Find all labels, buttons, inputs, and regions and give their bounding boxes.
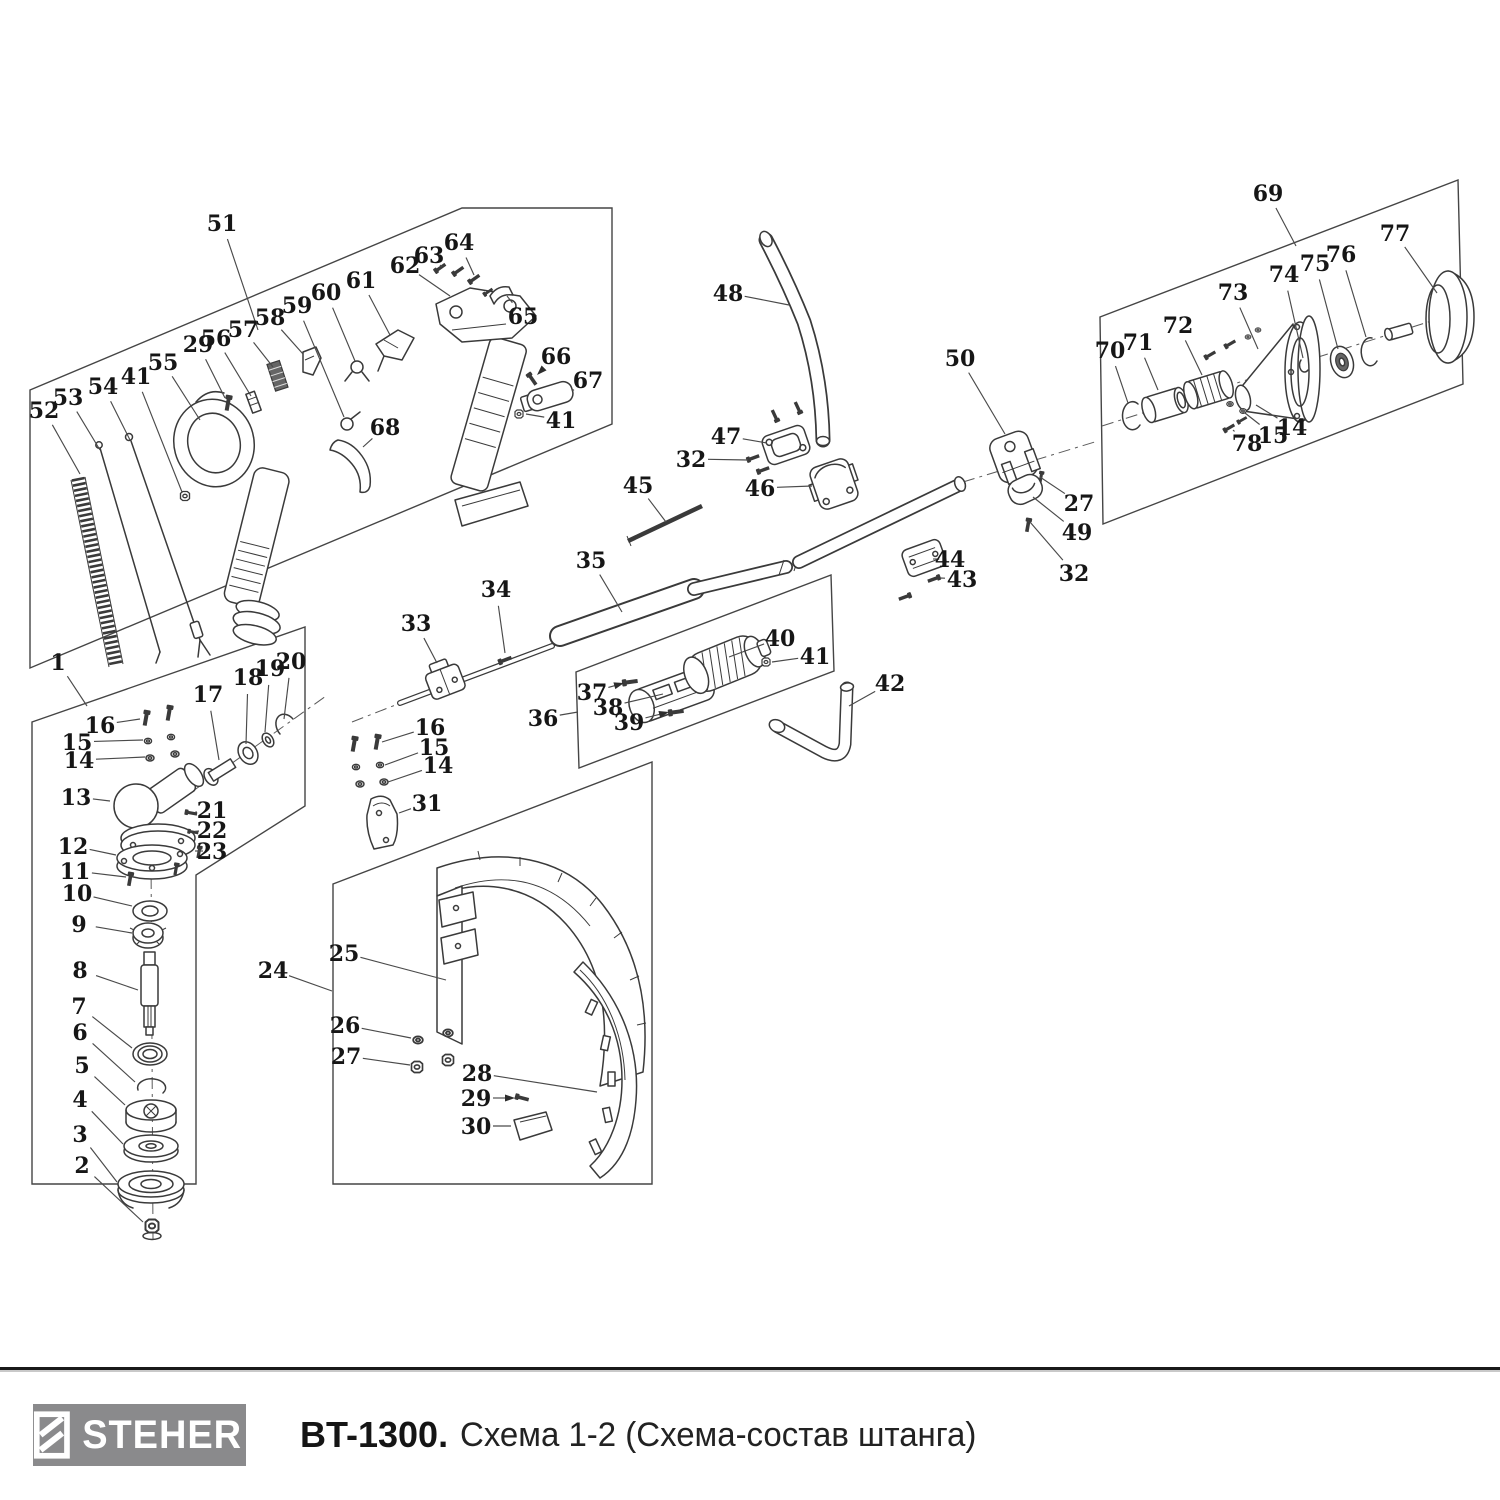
part-14-washer-1: [146, 755, 154, 761]
part-labels-layer: 5152535441552956575859606162636465666768…: [29, 181, 1437, 1222]
leader-61-12: [369, 295, 390, 335]
part-21-screw: [184, 809, 197, 817]
part-2-nut: [143, 1220, 161, 1240]
part-5-holder-cup: [126, 1100, 176, 1132]
part-label-70-77: 70: [1095, 338, 1126, 364]
part-53-cable: [96, 442, 160, 663]
part-68-throttle-trigger: [330, 440, 370, 492]
part-label-14-50: 14: [423, 753, 454, 779]
leader-20-28: [284, 678, 289, 719]
leader-41-20: [526, 414, 544, 417]
part-label-26-71: 26: [330, 1013, 361, 1039]
leader-32-61: [708, 459, 748, 460]
leader-16-22: [117, 719, 140, 722]
part-15-washer-e: [1227, 402, 1233, 407]
part-10-bearing: [133, 901, 167, 921]
part-47-handlebar-clamp-upper: [760, 424, 811, 467]
leader-arrow-37-53: [613, 682, 624, 689]
footer-divider: [0, 1367, 1500, 1372]
leader-6-39: [93, 1043, 135, 1082]
leader-69-76: [1276, 208, 1296, 246]
leader-62-13: [419, 275, 450, 296]
part-shaft-rod: [400, 646, 552, 703]
guard-assembly-parts: [412, 851, 647, 1178]
leader-5-40: [94, 1077, 125, 1105]
part-57-ribbed-block: [267, 361, 288, 392]
leader-45-47: [648, 499, 666, 522]
leader-33-44: [424, 638, 437, 663]
leader-24-69: [289, 976, 332, 991]
part-73-washer-2: [1255, 328, 1261, 332]
part-label-4-41: 4: [72, 1087, 87, 1113]
part-label-68-19: 68: [370, 415, 401, 441]
part-52-spring: [71, 477, 123, 667]
part-label-65-16: 65: [508, 304, 539, 330]
part-16-screw-1: [141, 710, 151, 727]
leader-16-48: [382, 732, 414, 742]
part-15-washer-1: [144, 738, 151, 743]
part-7-bearing-lower: [133, 1043, 167, 1065]
part-label-59-10: 59: [282, 293, 313, 319]
centerline-shaft-left: [352, 704, 398, 722]
part-41-nut-a: [181, 492, 190, 501]
part-41-nut-c: [762, 658, 770, 666]
part-label-55-5: 55: [148, 350, 179, 376]
part-label-54-3: 54: [88, 374, 119, 400]
leader-27-66: [1040, 477, 1065, 494]
part-77-clutch-drum: [1383, 271, 1474, 363]
part-label-67-18: 67: [573, 368, 604, 394]
leader-48-59: [745, 296, 789, 305]
leader-17-25: [211, 711, 219, 760]
part-30-cutoff-blade: [514, 1112, 552, 1140]
leader-arrow-29-74: [505, 1095, 515, 1102]
leader-50-65: [969, 373, 1005, 434]
part-label-29-74: 29: [461, 1086, 492, 1112]
part-66-screw: [525, 371, 538, 386]
part-label-25-70: 25: [329, 941, 360, 967]
leader-14-24: [96, 757, 145, 759]
part-label-2-43: 2: [74, 1153, 89, 1179]
leader-15-23: [94, 740, 143, 741]
leader-32-68: [1030, 522, 1063, 560]
part-label-6-39: 6: [72, 1020, 87, 1046]
part-label-12-33: 12: [58, 834, 89, 860]
leader-58-9: [281, 330, 303, 354]
part-label-28-73: 28: [462, 1061, 493, 1087]
part-14-washer-m1: [356, 781, 364, 787]
leader-54-3: [111, 401, 130, 440]
part-label-60-11: 60: [311, 280, 342, 306]
part-label-3-42: 3: [72, 1122, 87, 1148]
leader-8-37: [96, 976, 138, 990]
part-40-foam-grip: [678, 627, 776, 697]
part-73-washer-1: [1245, 335, 1251, 339]
leader-75-82: [1319, 279, 1338, 349]
leader-41-57: [772, 658, 798, 662]
part-label-66-17: 66: [541, 344, 572, 370]
part-27-nut-1: [412, 1062, 423, 1073]
leader-49-67: [1033, 497, 1064, 521]
clutch-assembly-parts: [1123, 271, 1474, 434]
steher-logo-text: STEHER: [82, 1413, 242, 1458]
leader-4-41: [92, 1111, 123, 1144]
part-46-handlebar-clamp-lower: [804, 455, 864, 512]
handle-assembly-parts: [71, 262, 575, 667]
part-25-guard-shield: [437, 851, 646, 1086]
part-label-32-61: 32: [676, 447, 707, 473]
part-60-wire-spring: [345, 361, 369, 381]
leader-31-51: [399, 809, 411, 813]
part-13-gear-housing: [114, 760, 207, 859]
steher-logo: STEHER: [33, 1404, 246, 1466]
part-15-washer-2: [167, 734, 174, 739]
part-label-20-28: 20: [276, 649, 307, 675]
part-61-lock-lever: [376, 330, 414, 371]
leader-19-27: [265, 685, 269, 732]
leader-12-33: [90, 849, 116, 855]
leader-64-15: [466, 257, 474, 275]
leader-27-72: [363, 1058, 410, 1065]
leader-36-52: [560, 712, 578, 715]
leader-13-29: [93, 799, 110, 801]
part-label-61-12: 61: [346, 268, 377, 294]
part-48-handlebar-tube: [757, 229, 829, 445]
part-label-5-40: 5: [74, 1053, 89, 1079]
mount-hardware-parts: [349, 734, 397, 849]
part-17-pinion-shaft: [201, 755, 238, 787]
part-label-1-21: 1: [50, 650, 65, 676]
schema-caption: BT-1300. Схема 1-2 (Схема-состав штанга): [300, 1404, 992, 1466]
footer: STEHER BT-1300. Схема 1-2 (Схема-состав …: [0, 1400, 1500, 1470]
part-43-screw-2: [898, 592, 913, 602]
part-70-ring: [1123, 402, 1140, 430]
diagram-page: 5152535441552956575859606162636465666768…: [0, 0, 1500, 1500]
part-27-nut-2: [443, 1055, 454, 1066]
leader-14-50: [388, 770, 422, 782]
part-label-53-2: 53: [53, 385, 84, 411]
part-label-27-72: 27: [331, 1044, 362, 1070]
part-8-drive-shaft: [141, 952, 158, 1035]
part-label-40-56: 40: [765, 626, 796, 652]
leader-76-83: [1346, 270, 1366, 337]
leader-15-49: [385, 753, 418, 765]
part-45-long-screw-rod: [627, 506, 702, 546]
part-42-loop-tube: [767, 682, 854, 755]
schema-subtitle: Схема 1-2 (Схема-состав штанга): [460, 1416, 976, 1455]
leader-77-84: [1405, 247, 1437, 293]
part-label-76-83: 76: [1326, 242, 1357, 268]
part-76-snap-ring: [1361, 338, 1377, 366]
part-41-nut-b: [515, 410, 523, 418]
part-26-washer-1: [413, 1036, 423, 1043]
steher-logo-icon: [33, 1410, 71, 1460]
part-56-spring-clip: [246, 391, 261, 413]
part-label-46-62: 46: [745, 476, 776, 502]
part-59-wire-ring: [341, 412, 360, 430]
part-label-48-59: 48: [713, 281, 744, 307]
part-label-69-76: 69: [1253, 181, 1284, 207]
part-4-pressure-disc: [124, 1135, 178, 1162]
schema-model: BT-1300.: [300, 1414, 448, 1456]
part-label-13-29: 13: [61, 785, 92, 811]
part-47-screw-2: [793, 401, 804, 416]
part-73-screw-1: [1203, 349, 1217, 360]
leader-9-36: [96, 927, 132, 933]
part-43-screw-1: [927, 574, 942, 584]
part-label-31-51: 31: [412, 791, 443, 817]
leader-7-38: [92, 1017, 132, 1048]
part-31-bracket: [367, 796, 398, 849]
part-label-73-80: 73: [1218, 280, 1249, 306]
part-label-47-60: 47: [711, 424, 742, 450]
part-73-screw-2: [1223, 338, 1237, 349]
part-label-7-38: 7: [71, 994, 86, 1020]
leader-10-35: [94, 897, 132, 906]
part-label-23-32: 23: [197, 839, 228, 865]
part-18-bearing-b: [234, 738, 262, 768]
leader-71-78: [1145, 358, 1158, 390]
exploded-parts-diagram: 5152535441552956575859606162636465666768…: [0, 0, 1500, 1500]
part-label-32-68: 32: [1059, 561, 1090, 587]
leader-35-46: [600, 575, 622, 612]
part-label-35-46: 35: [576, 548, 607, 574]
part-label-39-55: 39: [614, 710, 645, 736]
part-75-bearing-e: [1327, 343, 1357, 380]
part-label-64-15: 64: [444, 230, 475, 256]
part-label-51-0: 51: [207, 211, 238, 237]
part-19-washer-b: [260, 731, 276, 749]
part-16-screw-2: [164, 705, 174, 722]
part-label-33-44: 33: [401, 611, 432, 637]
leader-53-2: [77, 412, 100, 450]
leader-57-8: [254, 342, 273, 367]
part-label-14-87: 14: [1277, 415, 1308, 441]
part-label-42-58: 42: [875, 671, 906, 697]
leader-46-62: [777, 486, 812, 487]
part-label-50-65: 50: [945, 346, 976, 372]
part-label-45-47: 45: [623, 473, 654, 499]
leader-72-79: [1185, 340, 1202, 375]
part-label-36-52: 36: [528, 706, 559, 732]
leader-11-34: [92, 873, 126, 877]
part-label-8-37: 8: [72, 958, 87, 984]
part-label-14-24: 14: [64, 748, 95, 774]
part-label-27-66: 27: [1064, 491, 1095, 517]
part-14-washer-m2: [380, 779, 388, 785]
box-handle-assembly: [30, 208, 612, 668]
leader-26-71: [362, 1028, 411, 1038]
part-label-63-14: 63: [414, 243, 445, 269]
part-9-gear: [130, 923, 166, 948]
part-label-77-84: 77: [1380, 221, 1411, 247]
part-15-washer-m2: [376, 762, 383, 767]
leader-28-73: [494, 1076, 597, 1092]
part-label-10-35: 10: [62, 881, 93, 907]
part-14-washer-2: [171, 751, 179, 757]
part-3-spool-drum: [118, 1171, 184, 1208]
leader-52-1: [52, 425, 80, 474]
part-32-screw-2: [756, 465, 771, 475]
leader-60-11: [333, 308, 355, 361]
part-label-41-20: 41: [546, 408, 577, 434]
part-55-handle-front-half: [164, 390, 291, 649]
part-label-30-75: 30: [461, 1114, 492, 1140]
part-58-latch: [303, 347, 321, 375]
part-15-washer-m1: [352, 764, 359, 769]
leader-70-77: [1115, 366, 1128, 403]
part-47-screw-1: [770, 409, 781, 424]
part-29-screw-c: [514, 1093, 529, 1103]
part-label-43-64: 43: [947, 567, 978, 593]
leader-34-45: [498, 606, 505, 653]
part-label-49-67: 49: [1062, 520, 1093, 546]
part-37-screw: [622, 677, 639, 686]
part-label-17-25: 17: [193, 682, 224, 708]
leader-56-7: [225, 353, 251, 396]
part-label-9-36: 9: [71, 912, 86, 938]
part-14-washer-e: [1240, 409, 1246, 414]
leader-1-21: [67, 676, 87, 706]
part-label-72-79: 72: [1163, 313, 1194, 339]
part-16-screw-m1: [349, 736, 359, 753]
part-26-washer-2: [443, 1029, 453, 1036]
part-73-clutch-housing: [1233, 316, 1320, 422]
part-label-41-57: 41: [800, 644, 831, 670]
part-label-24-69: 24: [258, 958, 289, 984]
leader-25-70: [360, 957, 446, 980]
part-64-screw-1: [451, 265, 465, 278]
leader-18-26: [246, 694, 247, 744]
part-71-sleeve: [1139, 386, 1191, 424]
part-6-snap-ring: [138, 1079, 166, 1093]
part-label-34-45: 34: [481, 577, 512, 603]
part-16-screw-m2: [372, 734, 382, 751]
part-78-screw-2: [1236, 415, 1248, 425]
part-label-74-81: 74: [1269, 262, 1300, 288]
part-label-71-78: 71: [1123, 330, 1154, 356]
part-32-screw-3: [1024, 517, 1033, 532]
part-32-screw-1: [746, 453, 761, 463]
